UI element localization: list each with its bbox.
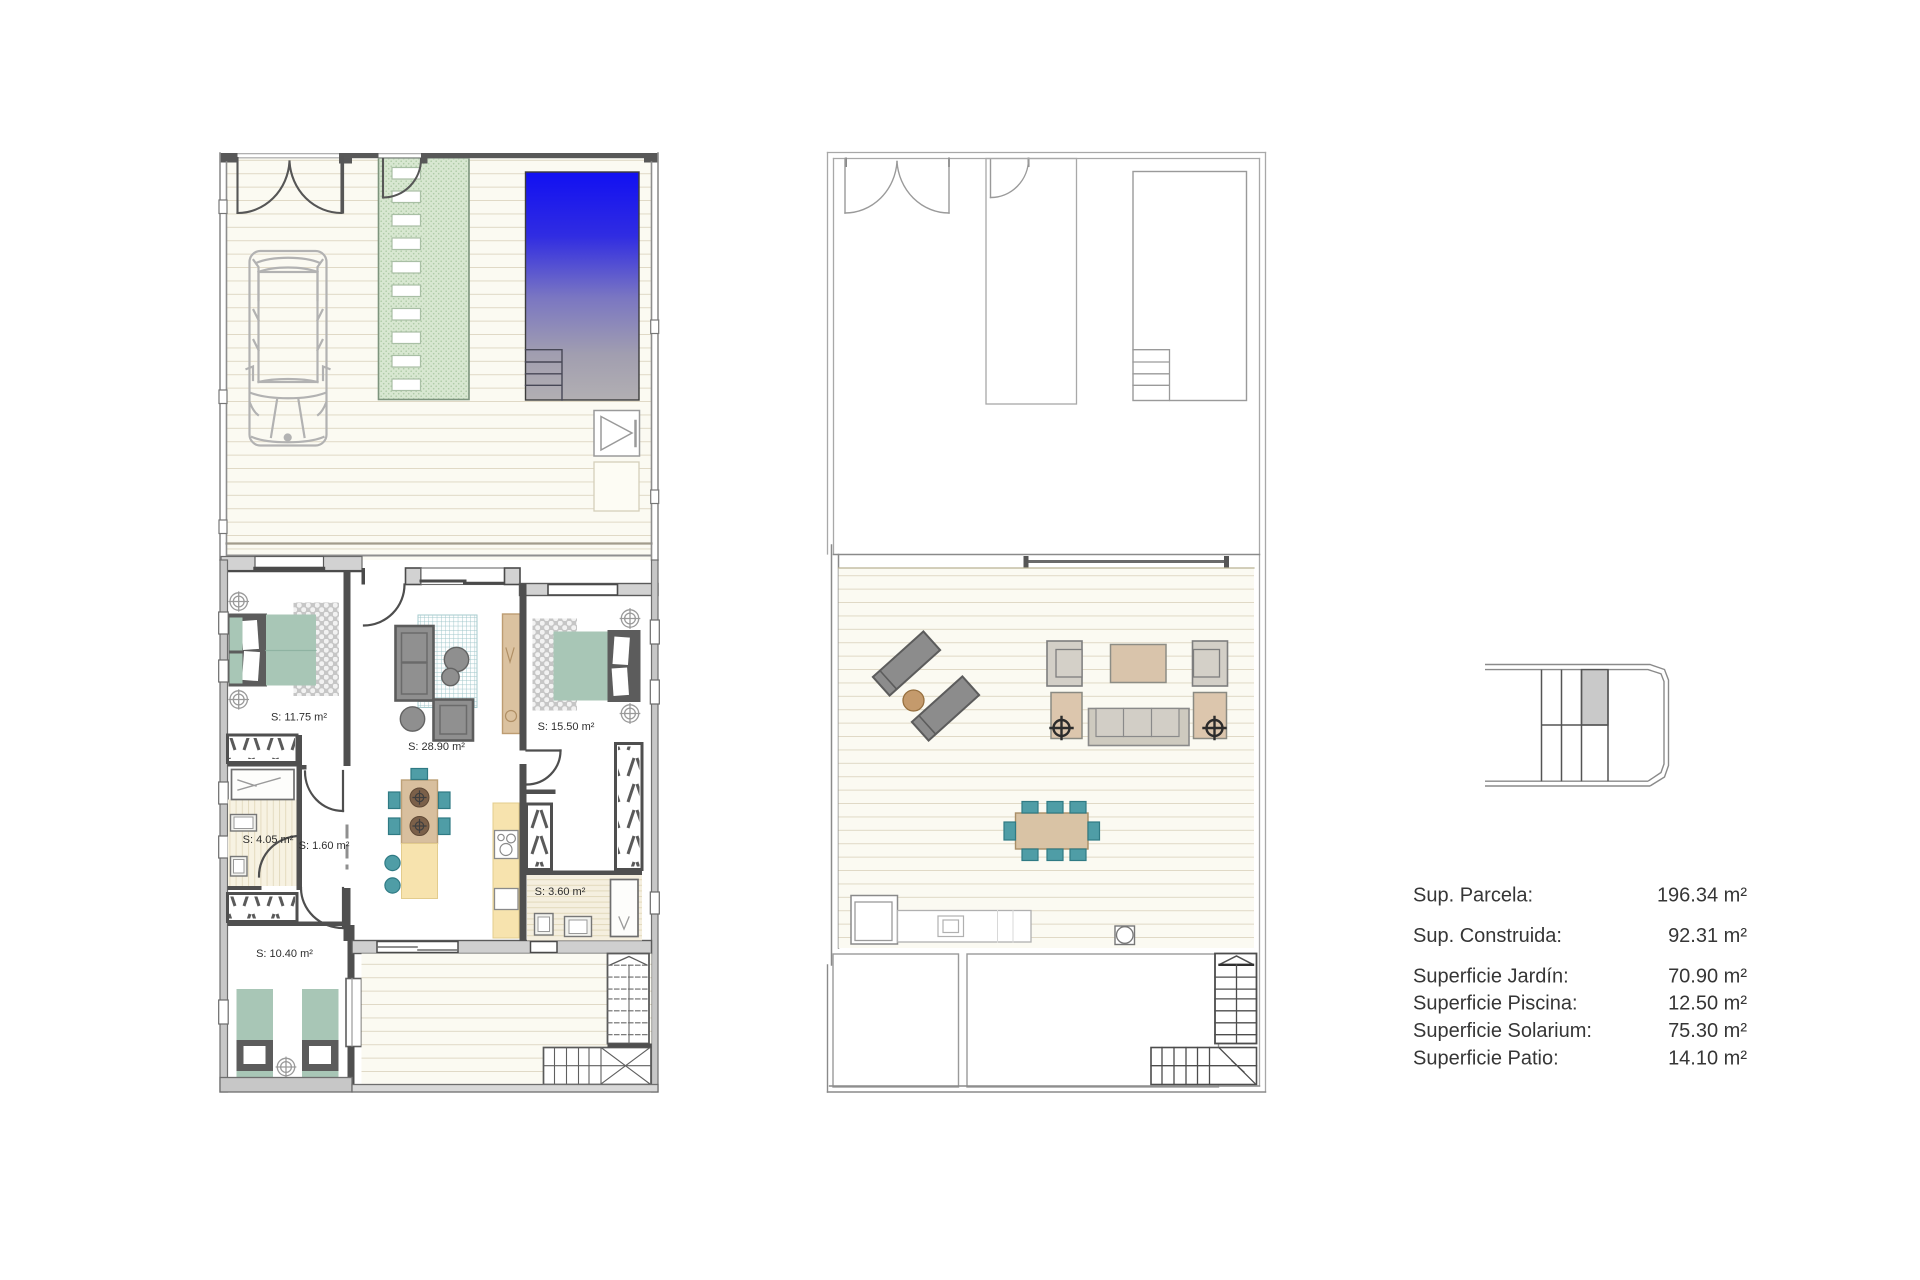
svg-text:Superficie Jardín:: Superficie Jardín: [1413,966,1569,988]
svg-text:S: 15.50 m²: S: 15.50 m² [538,721,595,733]
svg-text:S: 10.40 m²: S: 10.40 m² [256,948,313,960]
svg-text:S: 3.60 m²: S: 3.60 m² [535,886,586,898]
svg-text:Sup. Construida:: Sup. Construida: [1413,925,1562,947]
svg-text:Superficie Piscina:: Superficie Piscina: [1413,993,1578,1015]
svg-text:Superficie Solarium:: Superficie Solarium: [1413,1020,1592,1042]
svg-text:Sup. Parcela:: Sup. Parcela: [1413,885,1533,907]
svg-text:75.30 m²: 75.30 m² [1668,1020,1747,1042]
svg-text:12.50 m²: 12.50 m² [1668,993,1747,1015]
svg-text:S: 4.05 m²: S: 4.05 m² [243,834,294,846]
svg-text:92.31 m²: 92.31 m² [1668,925,1747,947]
svg-text:S: 28.90 m²: S: 28.90 m² [408,741,465,753]
svg-text:S: 1.60 m²: S: 1.60 m² [299,840,350,852]
svg-text:14.10 m²: 14.10 m² [1668,1048,1747,1070]
svg-text:70.90 m²: 70.90 m² [1668,966,1747,988]
svg-text:196.34 m²: 196.34 m² [1657,885,1747,907]
svg-text:S: 11.75 m²: S: 11.75 m² [271,712,327,724]
svg-text:Superficie Patio:: Superficie Patio: [1413,1048,1559,1070]
